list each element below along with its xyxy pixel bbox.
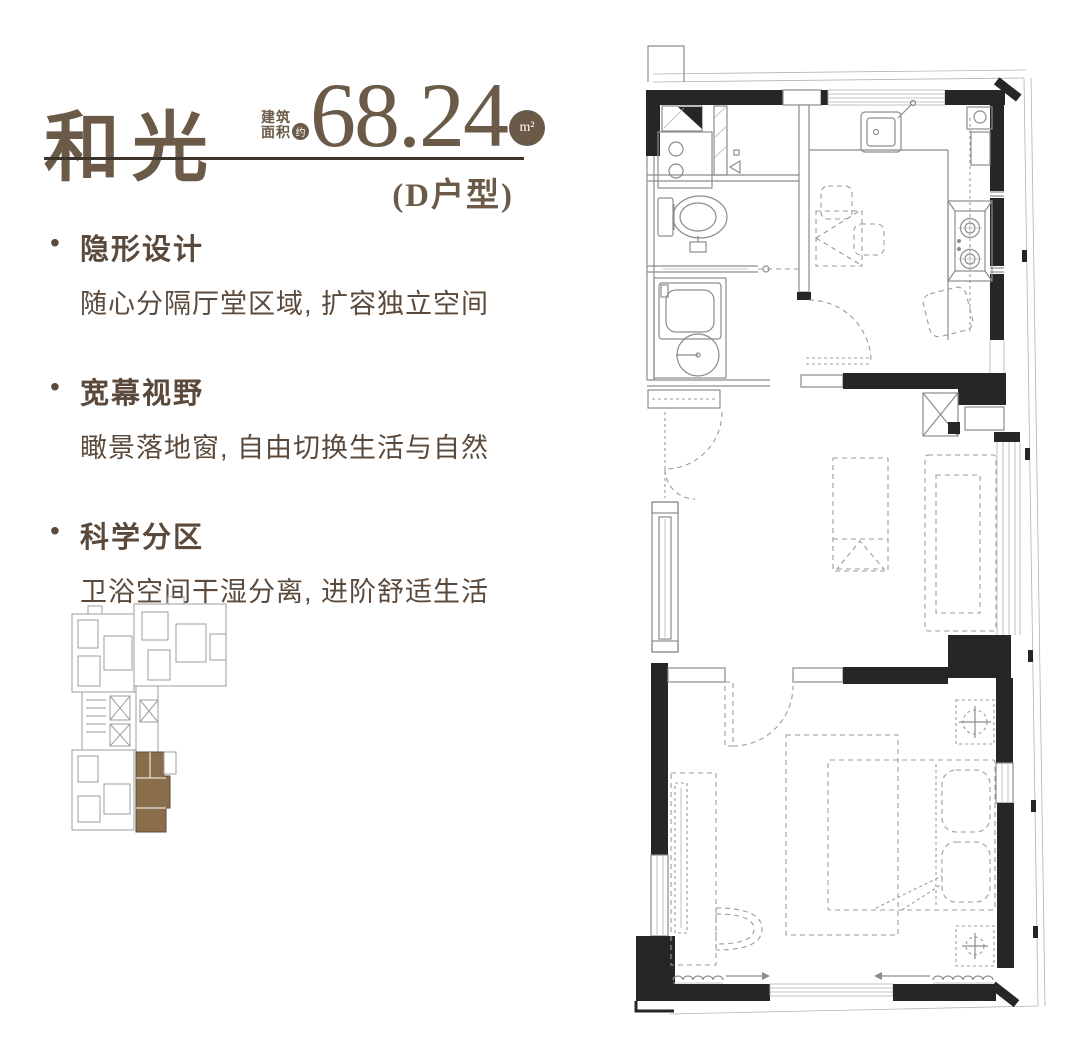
window-top — [828, 90, 945, 105]
curtain-left — [673, 972, 770, 983]
bullet-icon: • — [50, 517, 60, 545]
bedroom-door-leaf — [725, 682, 733, 746]
bullet-icon: • — [50, 229, 60, 257]
feature-desc: 瞰景落地窗, 自由切换生活与自然 — [80, 426, 489, 465]
bullet-icon: • — [50, 373, 60, 401]
toilet — [658, 198, 673, 236]
bath-fixture — [658, 132, 712, 188]
feature-title: 隐形设计 — [80, 226, 489, 268]
bedroom-desk — [671, 773, 716, 965]
feature-title: 宽幕视野 — [80, 370, 489, 412]
highlighted-unit-d — [136, 752, 170, 832]
dining-chair — [854, 224, 884, 255]
ceiling-symbol — [956, 926, 994, 966]
door-arc-kitchen — [809, 300, 871, 362]
page: 和光 建筑 面积 约 68.24 m² (D户型) • 隐形设计 随心分隔厅堂区… — [0, 0, 1080, 1048]
bedroom-rug — [786, 735, 898, 935]
area-unit-badge: m² — [509, 110, 545, 146]
feature-item: • 隐形设计 随心分隔厅堂区域, 扩容独立空间 — [50, 226, 489, 321]
wall-top — [646, 90, 783, 105]
living-window — [994, 432, 1020, 635]
curtain-right — [874, 972, 993, 983]
wall-left-bedroom — [651, 663, 668, 855]
feature-item: • 科学分区 卫浴空间干湿分离, 进阶舒适生活 — [50, 514, 489, 609]
pillow — [942, 770, 990, 832]
wall-living-top — [843, 373, 958, 389]
entry-door-arc — [665, 469, 695, 499]
wall-bath-kitchen — [799, 105, 809, 292]
corner-fixture — [967, 107, 992, 129]
title-divider — [44, 157, 524, 160]
area-prefix-line2: 面积 — [261, 125, 291, 140]
feature-list: • 隐形设计 随心分隔厅堂区域, 扩容独立空间 • 宽幕视野 瞰景落地窗, 自由… — [50, 226, 489, 658]
feature-desc: 随心分隔厅堂区域, 扩容独立空间 — [80, 282, 489, 321]
area-block: 建筑 面积 约 68.24 m² — [261, 82, 545, 148]
feature-item: • 宽幕视野 瞰景落地窗, 自由切换生活与自然 — [50, 370, 489, 465]
window-bottom — [770, 984, 893, 996]
ceiling-symbol — [956, 700, 994, 744]
wall-right-bedroom — [996, 678, 1013, 763]
bedroom-door-arc — [733, 686, 793, 746]
approx-badge: 约 — [292, 123, 309, 140]
feature-title: 科学分区 — [80, 514, 489, 556]
bath-cabinet — [654, 278, 726, 378]
entry-window — [652, 502, 678, 652]
dining-chair — [821, 186, 852, 219]
faucet — [690, 242, 706, 252]
area-prefix-line1: 建筑 — [261, 110, 291, 125]
bed — [828, 760, 995, 910]
area-value: 68.24 — [310, 82, 507, 148]
shower-head-icon — [730, 161, 740, 173]
unit-type-label: (D户型) — [44, 168, 514, 216]
floor-plan — [618, 28, 1060, 1048]
pillow — [942, 842, 990, 902]
entry-door-arc — [665, 412, 722, 469]
key-plan — [64, 596, 236, 834]
tv-cabinet — [833, 458, 888, 571]
roof-protrusion — [648, 46, 684, 82]
area-prefix: 建筑 面积 — [261, 110, 291, 140]
wall-bottom — [675, 984, 770, 1001]
